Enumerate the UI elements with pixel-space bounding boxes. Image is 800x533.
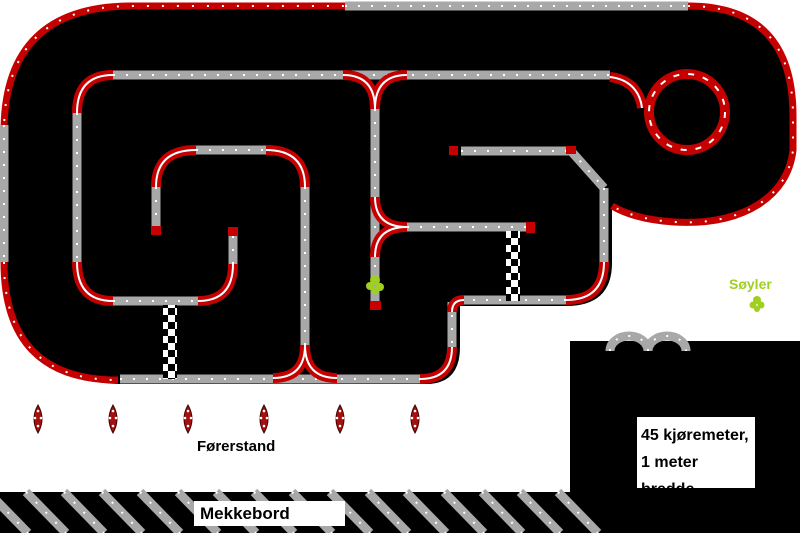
driver-markers xyxy=(34,405,420,433)
driver-marker xyxy=(109,405,118,433)
work-bench-label: Mekkebord xyxy=(194,504,290,524)
pillar-legend-splat xyxy=(750,296,765,312)
driver-marker xyxy=(34,405,43,433)
track-length-text: 45 kjøremeter, xyxy=(641,422,755,449)
driver-marker xyxy=(260,405,269,433)
track-plan-page: { "title": "RC-bane plantegning", "color… xyxy=(0,0,800,533)
driver-marker xyxy=(184,405,193,433)
track-width-text: 1 meter bredde xyxy=(641,449,755,503)
track-info-box: 45 kjøremeter, 1 meter bredde xyxy=(637,417,755,488)
pillars-label: Søyler xyxy=(729,276,772,292)
driver-marker xyxy=(411,405,420,433)
driver-marker xyxy=(336,405,345,433)
work-bench-label-box: Mekkebord xyxy=(194,501,345,526)
driver-stand-label: Førerstand xyxy=(197,438,275,455)
